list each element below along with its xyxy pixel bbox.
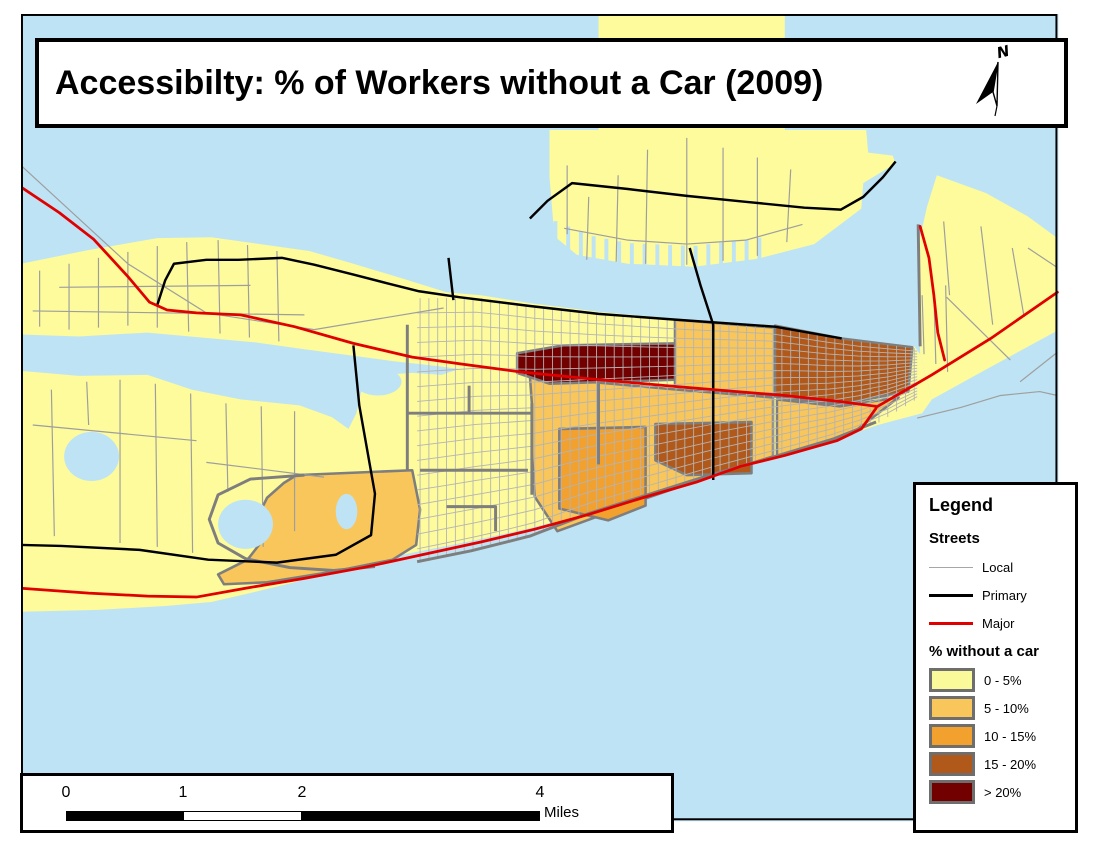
class-swatch-5-10 — [929, 696, 975, 720]
legend-street-major: Major — [929, 609, 1075, 637]
class-swatch-10-15 — [929, 724, 975, 748]
legend-class-row: 0 - 5% — [929, 668, 1075, 692]
lake — [336, 494, 358, 529]
legend-heading: Legend — [929, 495, 1075, 516]
scale-segment — [302, 811, 540, 821]
scale-bar: 0 1 2 4 Miles — [20, 773, 674, 833]
lake — [64, 432, 119, 481]
class-swatch-15-20 — [929, 752, 975, 776]
title-bar: Accessibilty: % of Workers without a Car… — [35, 38, 1068, 128]
legend-class-row: 5 - 10% — [929, 696, 1075, 720]
lake — [354, 368, 401, 396]
legend-street-primary: Primary — [929, 581, 1075, 609]
legend-class-row: > 20% — [929, 780, 1075, 804]
scale-tick-2: 2 — [298, 784, 307, 802]
class-swatch-0-5 — [929, 668, 975, 692]
legend-class-row: 10 - 15% — [929, 724, 1075, 748]
class-swatch-20plus — [929, 780, 975, 804]
local-line-swatch — [929, 567, 973, 568]
map-title: Accessibilty: % of Workers without a Car… — [55, 42, 823, 124]
scale-tick-4: 4 — [536, 784, 545, 802]
scale-unit: Miles — [544, 804, 579, 821]
lake — [218, 500, 273, 549]
legend-streets-heading: Streets — [929, 530, 1075, 547]
map-document: Accessibilty: % of Workers without a Car… — [0, 0, 1100, 850]
north-label: N — [995, 44, 1012, 62]
legend-class-row: 15 - 20% — [929, 752, 1075, 776]
scale-segment — [66, 811, 183, 821]
primary-line-swatch — [929, 594, 973, 597]
blockgroup-dark-red — [517, 343, 675, 383]
scale-tick-1: 1 — [179, 784, 188, 802]
major-line-swatch — [929, 622, 973, 625]
blockgroup-boundary — [918, 224, 920, 346]
legend: Legend Streets Local Primary Major % wit… — [913, 482, 1078, 833]
legend-street-local: Local — [929, 553, 1075, 581]
scale-tick-0: 0 — [62, 784, 71, 802]
north-arrow-icon: N — [966, 44, 1016, 124]
scale-segment — [183, 811, 302, 821]
legend-classes-heading: % without a car — [929, 643, 1075, 660]
